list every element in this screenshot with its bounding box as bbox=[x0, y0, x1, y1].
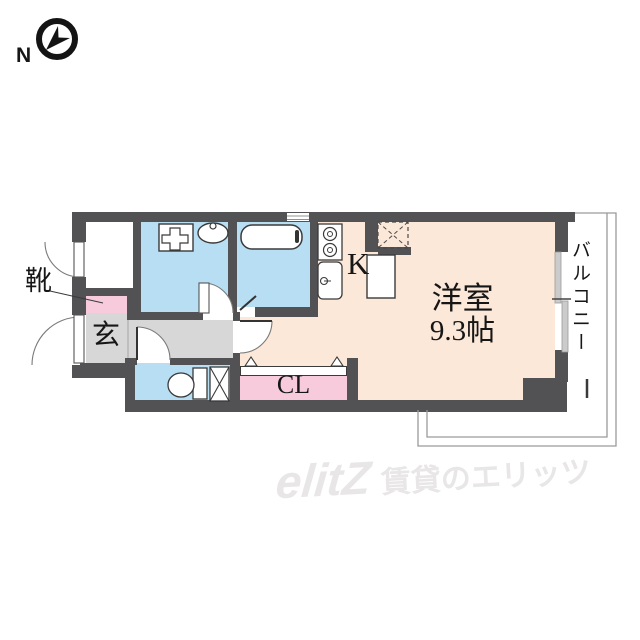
washing-machine-icon bbox=[159, 224, 193, 251]
bathroom-window-icon bbox=[287, 213, 309, 221]
watermark-tagline: 賃貸のエリッツ bbox=[380, 447, 592, 502]
stove-icon bbox=[318, 224, 342, 260]
main-room-size: 9.3帖 bbox=[400, 317, 525, 346]
compass-icon bbox=[39, 21, 75, 57]
refrigerator-space-icon bbox=[378, 222, 408, 248]
toilet-icon bbox=[168, 367, 229, 401]
watermark-logo: elitZ bbox=[274, 450, 373, 509]
main-room-door-arc bbox=[240, 321, 272, 353]
floor-plan-canvas: N 靴 玄 K 洋室 9.3帖 CL バルコニー elitZ 賃貸のエリッツ bbox=[0, 0, 640, 640]
compass-north-label: N bbox=[16, 45, 31, 66]
kitchen-label: K bbox=[347, 248, 369, 279]
bathtub-icon bbox=[241, 225, 302, 249]
kitchen-sink-icon bbox=[318, 262, 342, 299]
main-room-label: 洋室 9.3帖 bbox=[400, 283, 525, 346]
main-room-name: 洋室 bbox=[400, 283, 525, 314]
kitchen-counter-icon bbox=[367, 255, 395, 298]
washroom-door-arc bbox=[199, 283, 233, 313]
closet-label: CL bbox=[240, 372, 347, 398]
shoes-pointer-line bbox=[50, 291, 103, 303]
balcony-label: バルコニー bbox=[570, 240, 589, 415]
closet-door-triangles-icon bbox=[245, 357, 343, 366]
entrance-door-arc bbox=[32, 315, 84, 365]
shoes-label: 靴 bbox=[25, 268, 52, 295]
bathroom-door-leaf bbox=[240, 296, 256, 310]
washbasin-icon bbox=[198, 223, 228, 243]
entrance-label: 玄 bbox=[92, 322, 120, 350]
toilet-door-arc bbox=[137, 327, 170, 360]
